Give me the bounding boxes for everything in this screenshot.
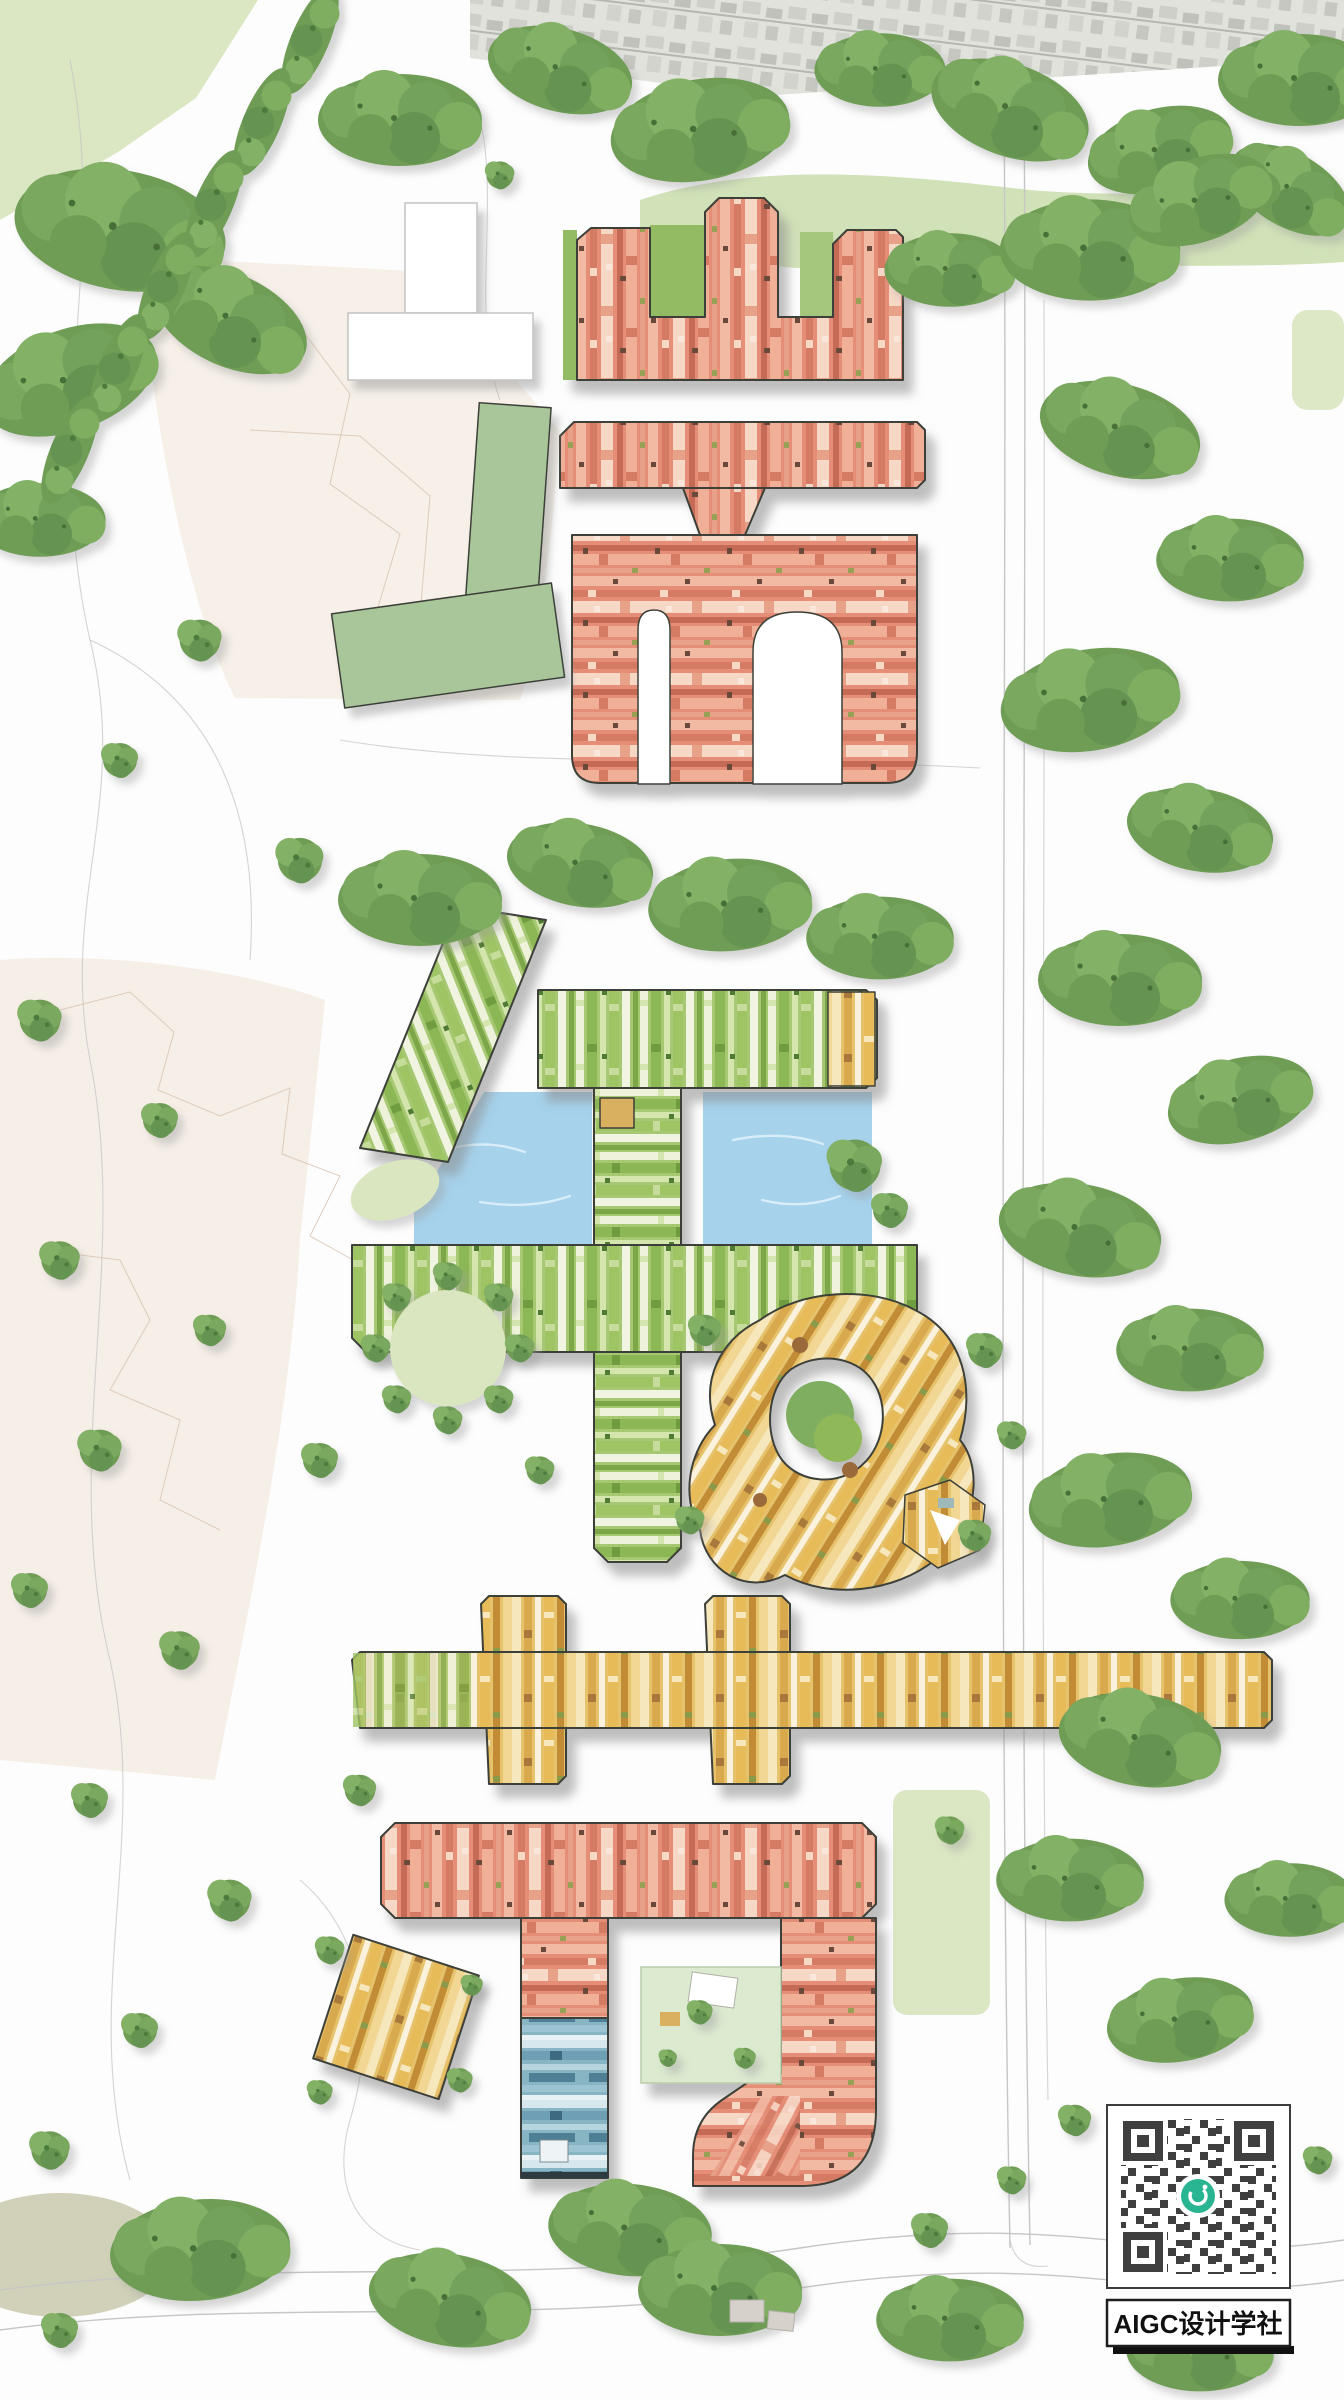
lawn-right-edge xyxy=(1292,310,1344,410)
qr-center-logo-icon xyxy=(1176,2174,1220,2218)
village-fabric-west xyxy=(0,958,325,1780)
qr-label: AIGC设计学社 xyxy=(1107,2300,1294,2354)
masterplan-canvas: AIGC设计学社 xyxy=(0,0,1344,2400)
white-building-horizontal xyxy=(348,313,533,380)
site-plan-rendering: AIGC设计学社 xyxy=(0,0,1344,2400)
sage-slab-vertical xyxy=(465,403,551,614)
white-building-vertical xyxy=(405,203,477,313)
qr-label-text: AIGC设计学社 xyxy=(1113,2309,1282,2339)
qr-code xyxy=(1107,2105,1290,2288)
cluster-round-village xyxy=(689,1294,985,1590)
cluster-er-red xyxy=(560,422,925,784)
